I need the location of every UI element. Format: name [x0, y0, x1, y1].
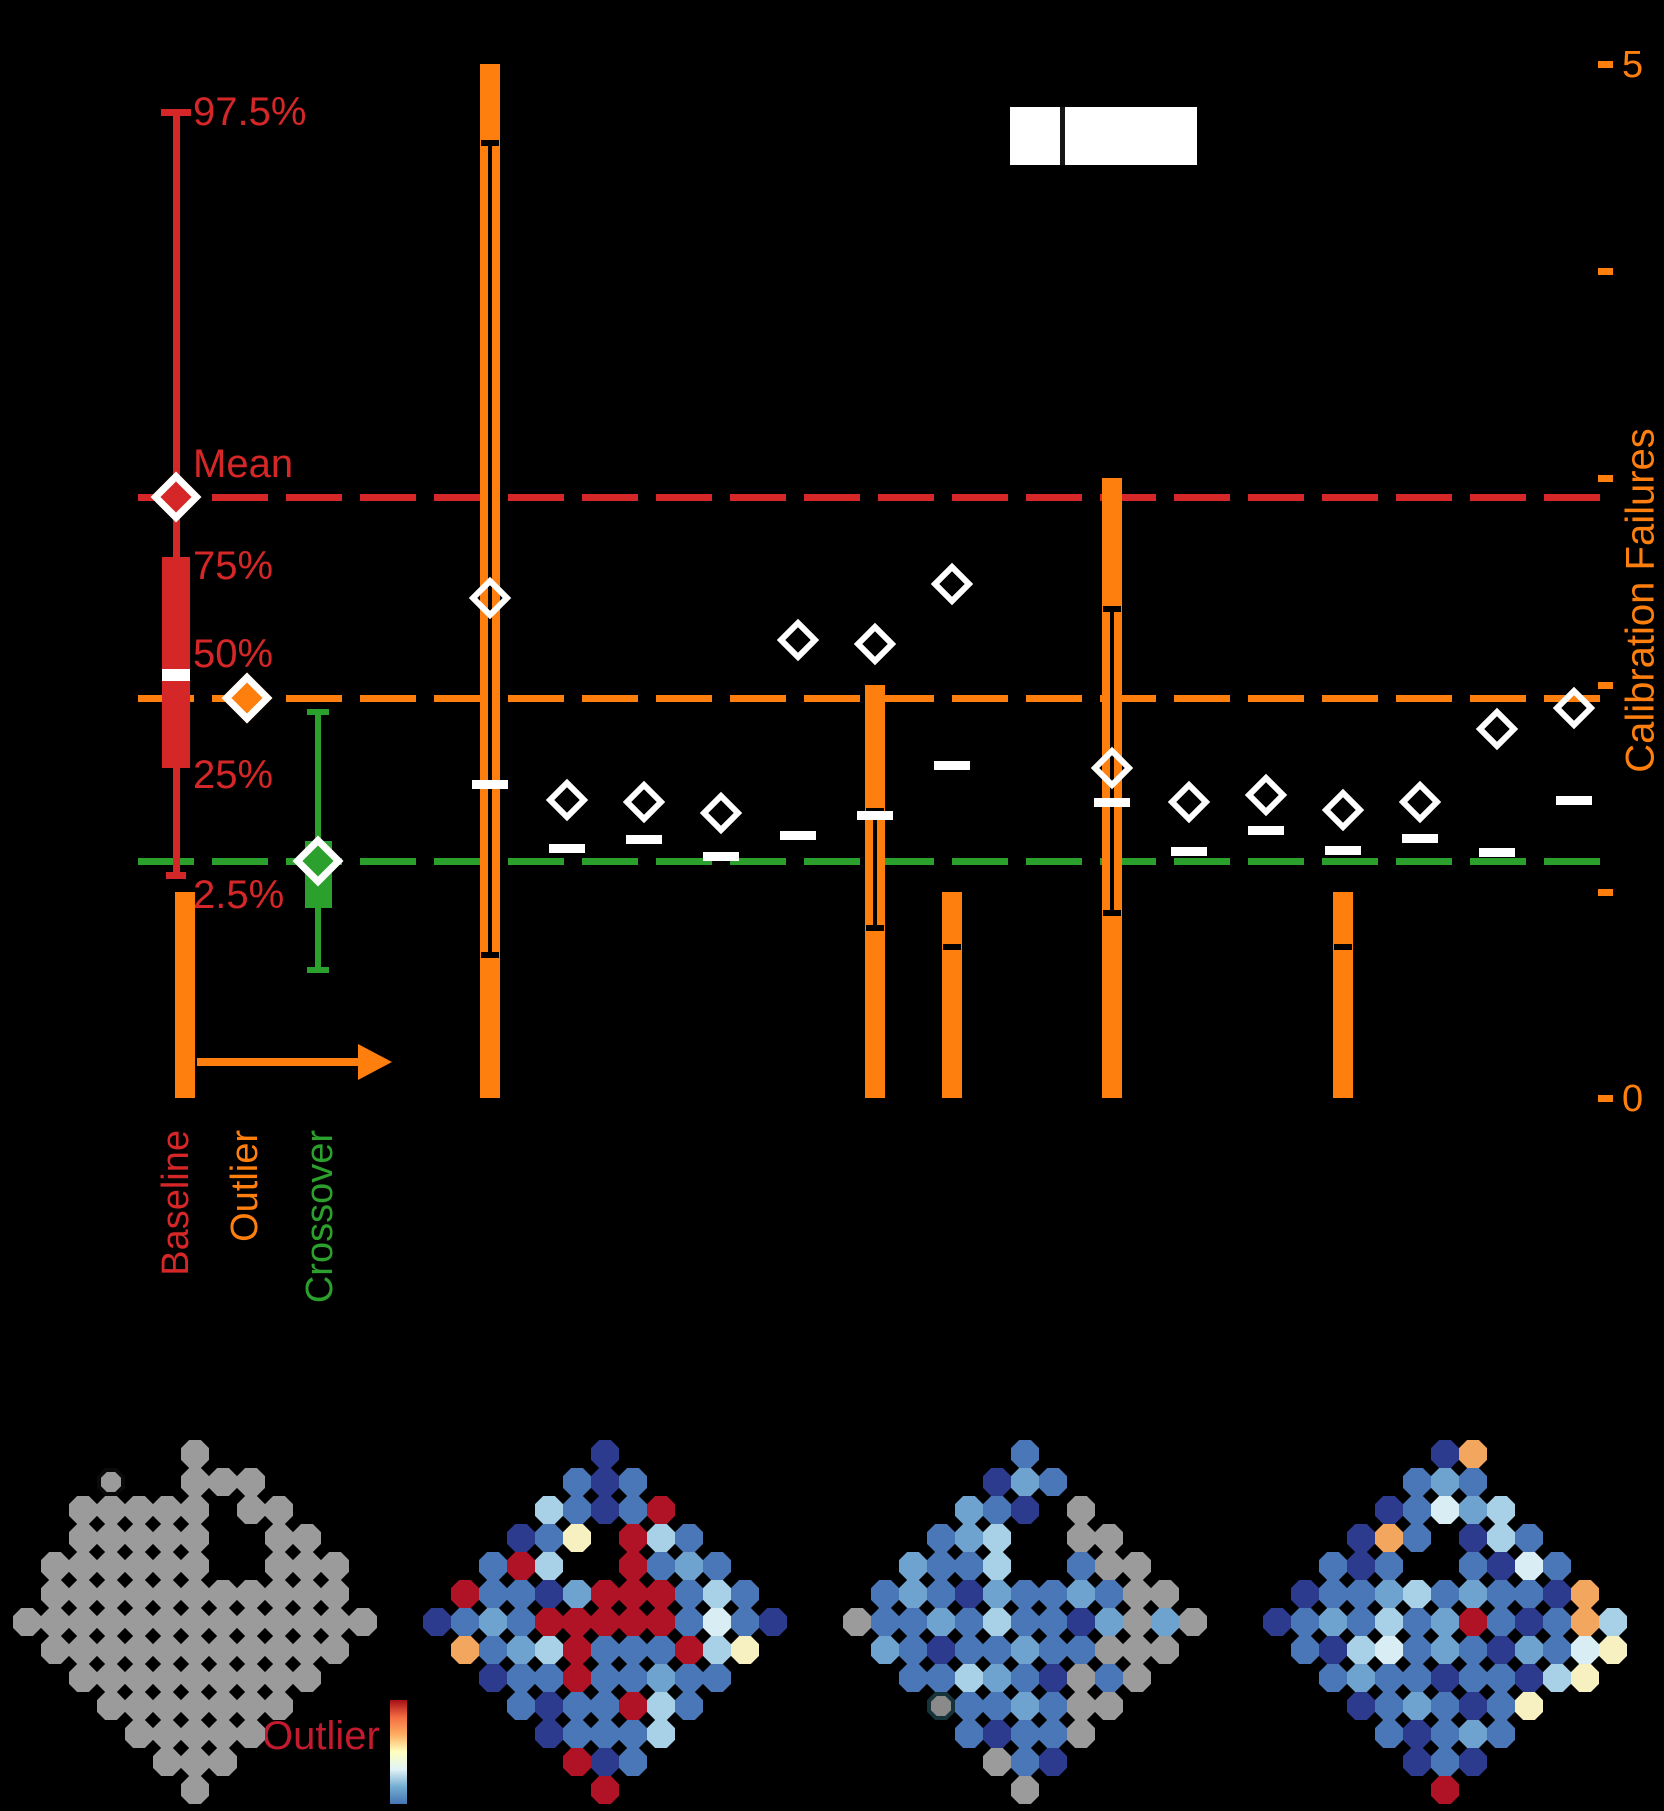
- map-fourth-cell: [1319, 1636, 1347, 1664]
- map-crossover-cell: [1039, 1580, 1067, 1608]
- map-baseline-cell: [237, 1608, 265, 1636]
- map-baseline-cell: [41, 1608, 69, 1636]
- map-baseline-cell: [69, 1636, 97, 1664]
- map-crossover-cell: [871, 1636, 899, 1664]
- map-fourth-cell: [1431, 1636, 1459, 1664]
- map-fourth-cell: [1431, 1776, 1459, 1804]
- map-fourth-cell: [1263, 1608, 1291, 1636]
- map-crossover-cell: [1095, 1552, 1123, 1580]
- map-outlier-cell: [675, 1608, 703, 1636]
- map-outlier-cell: [591, 1440, 619, 1468]
- map-baseline-cell: [125, 1552, 153, 1580]
- map-outlier-cell: [479, 1608, 507, 1636]
- map-baseline-cell: [237, 1468, 265, 1496]
- map-outlier-cell: [535, 1608, 563, 1636]
- map-fourth-cell: [1403, 1720, 1431, 1748]
- map-baseline-cell: [181, 1440, 209, 1468]
- median-dash-col-0: [472, 780, 508, 789]
- map-fourth-cell: [1347, 1664, 1375, 1692]
- map-outlier-cell: [563, 1692, 591, 1720]
- map-baseline-cell: [125, 1692, 153, 1720]
- map-crossover-cell: [1095, 1608, 1123, 1636]
- map-outlier-cell: [479, 1580, 507, 1608]
- map-fourth-cell: [1487, 1608, 1515, 1636]
- map-fourth-cell: [1431, 1496, 1459, 1524]
- map-fourth-cell: [1431, 1748, 1459, 1776]
- map-baseline-cell: [265, 1552, 293, 1580]
- map-outlier-cell: [423, 1608, 451, 1636]
- right-axis-label-top: 5: [1622, 46, 1643, 84]
- map-outlier-cell: [675, 1692, 703, 1720]
- map-crossover-cell: [1067, 1552, 1095, 1580]
- median-dash-col-6: [934, 761, 970, 770]
- map-baseline-cell: [125, 1524, 153, 1552]
- map-crossover-cell: [1011, 1636, 1039, 1664]
- right-axis-label-bottom: 0: [1622, 1080, 1643, 1118]
- map-fourth-cell: [1571, 1608, 1599, 1636]
- map-crossover-cell: [899, 1608, 927, 1636]
- map-fourth-cell: [1459, 1468, 1487, 1496]
- map-outlier-cell: [507, 1608, 535, 1636]
- bar-col-5-err-cap: [866, 925, 884, 931]
- map-outlier-cell: [507, 1664, 535, 1692]
- map-outlier-cell: [731, 1636, 759, 1664]
- map-fourth-cell: [1347, 1608, 1375, 1636]
- right-axis-title: Calibration Failures: [1619, 351, 1664, 851]
- map-outlier-cell: [647, 1496, 675, 1524]
- map-outlier-cell: [563, 1664, 591, 1692]
- map-baseline-cell: [321, 1580, 349, 1608]
- arrow-head: [358, 1044, 392, 1080]
- map-baseline-cell: [265, 1608, 293, 1636]
- map-fourth-cell: [1515, 1664, 1543, 1692]
- map-baseline-cell: [209, 1636, 237, 1664]
- label-50: 50%: [193, 634, 273, 674]
- map-outlier-cell: [563, 1748, 591, 1776]
- map-baseline-cell: [153, 1580, 181, 1608]
- map-fourth-cell: [1571, 1664, 1599, 1692]
- median-dash-col-8: [1171, 847, 1207, 856]
- map-baseline-cell: [153, 1692, 181, 1720]
- map-outlier-cell: [619, 1748, 647, 1776]
- map-baseline-cell: [181, 1468, 209, 1496]
- map-outlier-cell: [675, 1580, 703, 1608]
- map-baseline-cell: [209, 1720, 237, 1748]
- map-fourth-cell: [1515, 1580, 1543, 1608]
- map-fourth-cell: [1375, 1720, 1403, 1748]
- map-baseline-cell: [181, 1776, 209, 1804]
- map-baseline-cell: [293, 1580, 321, 1608]
- map-fourth-cell: [1319, 1608, 1347, 1636]
- map-baseline-cell: [125, 1580, 153, 1608]
- map-crossover-cell: [1151, 1608, 1179, 1636]
- map-crossover-cell: [1179, 1608, 1207, 1636]
- map-baseline-cell: [97, 1496, 125, 1524]
- map-fourth-cell: [1515, 1608, 1543, 1636]
- map-outlier-cell: [451, 1608, 479, 1636]
- bar-col-5-err-line: [873, 811, 877, 928]
- map-outlier-cell: [619, 1580, 647, 1608]
- map-outlier-cell: [675, 1524, 703, 1552]
- map-baseline-cell: [209, 1748, 237, 1776]
- map-crossover-cell: [983, 1496, 1011, 1524]
- median-dash-col-10: [1325, 846, 1361, 855]
- map-baseline-cell: [69, 1580, 97, 1608]
- map-crossover-cell: [1123, 1552, 1151, 1580]
- label-25: 25%: [193, 755, 273, 795]
- right-axis-tick: [1598, 1095, 1613, 1102]
- map-crossover-cell: [1067, 1720, 1095, 1748]
- map-outlier-cell: [563, 1580, 591, 1608]
- map-baseline-cell: [321, 1552, 349, 1580]
- bar-baseline: [175, 892, 195, 1098]
- label-mean: Mean: [193, 444, 293, 484]
- map-baseline-cell: [153, 1636, 181, 1664]
- map-outlier-cell: [535, 1496, 563, 1524]
- mean-line: [138, 494, 1608, 501]
- median-dash-col-9: [1248, 826, 1284, 835]
- mean-diamond-col-8: [1168, 781, 1210, 823]
- map-fourth-cell: [1515, 1692, 1543, 1720]
- map-crossover-cell: [1067, 1608, 1095, 1636]
- bar-col-0-err-cap: [481, 140, 499, 146]
- group-label-crossover: Crossover: [301, 1130, 339, 1450]
- map-fourth-cell: [1515, 1636, 1543, 1664]
- map-outlier-cell: [647, 1524, 675, 1552]
- map-baseline-cell: [97, 1692, 125, 1720]
- map-crossover-cell: [1011, 1748, 1039, 1776]
- map-outlier-cell: [647, 1608, 675, 1636]
- map-fourth-cell: [1431, 1580, 1459, 1608]
- red-whisker-cap-top: [161, 109, 191, 116]
- map-fourth-cell: [1431, 1608, 1459, 1636]
- map-fourth-cell: [1403, 1468, 1431, 1496]
- map-outlier-cell: [507, 1524, 535, 1552]
- map-baseline-cell: [153, 1664, 181, 1692]
- map-baseline-cell: [265, 1496, 293, 1524]
- map-baseline-cell: [13, 1608, 41, 1636]
- map-baseline-cell: [41, 1552, 69, 1580]
- map-fourth-cell: [1403, 1692, 1431, 1720]
- map-crossover-cell: [1095, 1664, 1123, 1692]
- map-outlier-cell: [535, 1692, 563, 1720]
- map-baseline-cell: [321, 1608, 349, 1636]
- map-outlier-cell: [535, 1664, 563, 1692]
- map-outlier-cell: [591, 1776, 619, 1804]
- map-fourth-cell: [1347, 1580, 1375, 1608]
- map-outlier-cell: [647, 1552, 675, 1580]
- map-fourth-cell: [1347, 1692, 1375, 1720]
- group-label-outlier: Outlier: [226, 1130, 264, 1450]
- map-fourth-cell: [1515, 1524, 1543, 1552]
- map-fourth-cell: [1375, 1664, 1403, 1692]
- map-baseline-cell: [293, 1552, 321, 1580]
- bar-col-6: [942, 892, 962, 1098]
- map-outlier-cell: [563, 1524, 591, 1552]
- right-axis-tick: [1598, 682, 1613, 689]
- map-outlier-cell: [535, 1720, 563, 1748]
- map-baseline-cell: [237, 1496, 265, 1524]
- map-crossover-cell: [1039, 1720, 1067, 1748]
- map-fourth-cell: [1543, 1552, 1571, 1580]
- map-crossover-cell: [1011, 1776, 1039, 1804]
- map-fourth-cell: [1319, 1552, 1347, 1580]
- map-fourth-cell: [1403, 1664, 1431, 1692]
- map-baseline-cell: [209, 1580, 237, 1608]
- map-baseline-cell: [97, 1608, 125, 1636]
- bar-col-10: [1333, 892, 1353, 1098]
- map-outlier-cell: [451, 1636, 479, 1664]
- map-outlier-cell: [479, 1636, 507, 1664]
- median-dash-col-12: [1479, 848, 1515, 857]
- map-crossover-cell: [1067, 1524, 1095, 1552]
- mean-diamond-col-12: [1476, 708, 1518, 750]
- map-baseline-cell: [181, 1608, 209, 1636]
- map-fourth-cell: [1487, 1524, 1515, 1552]
- map-baseline-cell: [41, 1580, 69, 1608]
- map-outlier-cell: [703, 1580, 731, 1608]
- map-crossover-cell: [1151, 1580, 1179, 1608]
- map-fourth-cell: [1543, 1664, 1571, 1692]
- map-crossover-cell: [843, 1608, 871, 1636]
- map-crossover-cell: [1067, 1664, 1095, 1692]
- map-fourth-cell: [1375, 1524, 1403, 1552]
- map-outlier-cell: [507, 1692, 535, 1720]
- map-fourth-cell: [1291, 1580, 1319, 1608]
- median-dash-col-11: [1402, 834, 1438, 843]
- legend-divider: [1060, 107, 1065, 165]
- map-fourth-cell: [1515, 1552, 1543, 1580]
- map-crossover-cell: [1095, 1524, 1123, 1552]
- map-outlier-cell: [619, 1664, 647, 1692]
- map-fourth-cell: [1375, 1580, 1403, 1608]
- map-baseline-cell: [153, 1748, 181, 1776]
- map-outlier-cell: [535, 1636, 563, 1664]
- mean-diamond-col-11: [1399, 781, 1441, 823]
- map-baseline-cell: [237, 1580, 265, 1608]
- map-baseline-cell: [209, 1664, 237, 1692]
- map-crossover-cell: [955, 1608, 983, 1636]
- map-outlier-cell: [591, 1748, 619, 1776]
- map-crossover-cell: [1011, 1496, 1039, 1524]
- map-baseline-cell: [293, 1608, 321, 1636]
- map-outlier-cell: [703, 1608, 731, 1636]
- map-crossover-cell: [899, 1636, 927, 1664]
- map-crossover-cell: [1067, 1692, 1095, 1720]
- map-crossover-cell: [955, 1720, 983, 1748]
- map-crossover-cell-outlined: [927, 1692, 955, 1720]
- map-baseline-cell: [237, 1720, 265, 1748]
- map-fourth-cell: [1375, 1496, 1403, 1524]
- map-crossover-cell: [871, 1608, 899, 1636]
- map-baseline-cell: [181, 1580, 209, 1608]
- bar-col-7-err-cap: [1103, 910, 1121, 916]
- map-outlier-cell: [451, 1580, 479, 1608]
- map-outlier-cell: [647, 1580, 675, 1608]
- map-fourth-cell: [1571, 1580, 1599, 1608]
- map-fourth-cell: [1543, 1636, 1571, 1664]
- map-crossover-cell: [983, 1608, 1011, 1636]
- map-outlier-cell: [563, 1636, 591, 1664]
- map-outlier-cell: [591, 1720, 619, 1748]
- map-outlier-cell: [591, 1636, 619, 1664]
- figure: 5 0 Calibration Failures 97.5% Mean 75% …: [0, 0, 1664, 1811]
- map-crossover-cell: [955, 1636, 983, 1664]
- red-median-line: [162, 669, 190, 681]
- green-whisker-cap-top: [307, 709, 329, 715]
- map-baseline-cell: [125, 1608, 153, 1636]
- map-crossover-cell: [983, 1692, 1011, 1720]
- map-outlier-cell: [535, 1580, 563, 1608]
- map-fourth-cell: [1375, 1692, 1403, 1720]
- orange-median-diamond: [222, 673, 273, 724]
- map-fourth-cell: [1459, 1440, 1487, 1468]
- map-baseline-cell: [69, 1608, 97, 1636]
- map-fourth-cell: [1459, 1524, 1487, 1552]
- map-outlier-cell: [731, 1608, 759, 1636]
- map-baseline-cell: [69, 1496, 97, 1524]
- map-baseline-cell: [237, 1636, 265, 1664]
- map-outlier-cell: [591, 1468, 619, 1496]
- map-crossover-cell-fill: [931, 1696, 951, 1716]
- label-97-5: 97.5%: [193, 92, 306, 132]
- map-outlier-cell: [703, 1552, 731, 1580]
- map-crossover-cell: [983, 1524, 1011, 1552]
- map-crossover-cell: [899, 1552, 927, 1580]
- map-outlier-cell: [591, 1608, 619, 1636]
- map-fourth-cell: [1375, 1552, 1403, 1580]
- map-baseline-cell: [265, 1664, 293, 1692]
- map-crossover-cell: [1095, 1636, 1123, 1664]
- red-whisker-cap-bottom: [166, 872, 186, 879]
- map-outlier-cell: [507, 1636, 535, 1664]
- map-baseline-cell: [125, 1664, 153, 1692]
- map-outlier-cell: [507, 1552, 535, 1580]
- bar-col-0-err-line: [488, 143, 492, 955]
- map-fourth-cell: [1459, 1636, 1487, 1664]
- mean-diamond-col-5: [854, 623, 896, 665]
- mean-diamond-col-0: [469, 577, 511, 619]
- map-crossover-cell: [1067, 1580, 1095, 1608]
- map-baseline-cell: [293, 1636, 321, 1664]
- map-fourth-cell: [1459, 1664, 1487, 1692]
- map-fourth-cell: [1347, 1636, 1375, 1664]
- map-outlier-cell: [647, 1664, 675, 1692]
- map-baseline-cell: [97, 1580, 125, 1608]
- map-crossover-cell: [983, 1664, 1011, 1692]
- label-75: 75%: [193, 546, 273, 586]
- map-fourth-cell: [1459, 1608, 1487, 1636]
- map-crossover-cell: [1123, 1664, 1151, 1692]
- right-axis-tick: [1598, 475, 1613, 482]
- map-crossover-cell: [1011, 1580, 1039, 1608]
- map-baseline-cell: [237, 1664, 265, 1692]
- map-outlier-cell: [591, 1664, 619, 1692]
- map-fourth-cell: [1543, 1580, 1571, 1608]
- map-outlier-cell: [647, 1692, 675, 1720]
- map-baseline-cell: [209, 1468, 237, 1496]
- map-fourth-cell: [1459, 1692, 1487, 1720]
- map-outlier-cell: [703, 1664, 731, 1692]
- map-outlier-cell: [563, 1608, 591, 1636]
- map-outlier-cell: [759, 1608, 787, 1636]
- map-crossover-cell: [955, 1524, 983, 1552]
- map-fourth-cell: [1487, 1580, 1515, 1608]
- map-baseline-cell: [153, 1608, 181, 1636]
- right-axis-tick: [1598, 61, 1613, 68]
- map-baseline-cell: [349, 1608, 377, 1636]
- map-baseline-cell: [237, 1692, 265, 1720]
- map-crossover-cell: [927, 1608, 955, 1636]
- map-baseline-cell: [181, 1636, 209, 1664]
- map-fourth-cell: [1319, 1664, 1347, 1692]
- map-baseline-cell: [97, 1552, 125, 1580]
- map-fourth-cell: [1291, 1636, 1319, 1664]
- bar-col-6-err-cap: [943, 944, 961, 950]
- map-fourth-cell: [1347, 1552, 1375, 1580]
- map-baseline-cell: [181, 1692, 209, 1720]
- map-baseline-cell: [321, 1636, 349, 1664]
- legend-box: [1010, 107, 1197, 165]
- outlier-colorbar: [390, 1700, 407, 1804]
- mean-diamond-col-2: [623, 781, 665, 823]
- map-crossover-cell: [927, 1664, 955, 1692]
- map-outlier-cell: [675, 1636, 703, 1664]
- map-fourth-cell: [1487, 1664, 1515, 1692]
- map-baseline-cell: [265, 1580, 293, 1608]
- map-crossover-cell: [927, 1552, 955, 1580]
- map-crossover-cell: [899, 1580, 927, 1608]
- label-2-5: 2.5%: [193, 875, 284, 915]
- map-baseline-cell: [125, 1496, 153, 1524]
- map-crossover-cell: [955, 1692, 983, 1720]
- map-crossover-cell: [1039, 1692, 1067, 1720]
- map-baseline-cell: [125, 1636, 153, 1664]
- map-crossover-cell: [955, 1496, 983, 1524]
- map-outlier-cell: [619, 1524, 647, 1552]
- map-crossover-cell: [927, 1636, 955, 1664]
- map-crossover-cell: [1095, 1692, 1123, 1720]
- map-baseline-cell-outlined: [97, 1468, 125, 1496]
- map-baseline-cell: [209, 1692, 237, 1720]
- bar-col-10-err-cap: [1334, 944, 1352, 950]
- bar-col-7-err-cap: [1103, 606, 1121, 612]
- map-outlier-cell: [731, 1580, 759, 1608]
- map-fourth-cell: [1543, 1608, 1571, 1636]
- mean-diamond-col-9: [1245, 774, 1287, 816]
- median-dash-col-13: [1556, 796, 1592, 805]
- map-fourth-cell: [1459, 1580, 1487, 1608]
- map-outlier-cell: [591, 1580, 619, 1608]
- map-baseline-cell: [153, 1552, 181, 1580]
- map-baseline-cell: [69, 1664, 97, 1692]
- map-baseline-cell: [209, 1608, 237, 1636]
- map-crossover-cell: [1123, 1608, 1151, 1636]
- map-fourth-cell: [1319, 1580, 1347, 1608]
- map-crossover-cell: [983, 1636, 1011, 1664]
- map-fourth-cell: [1431, 1468, 1459, 1496]
- map-crossover-cell: [1039, 1748, 1067, 1776]
- map-crossover-cell: [1039, 1468, 1067, 1496]
- map-fourth-cell: [1375, 1636, 1403, 1664]
- map-outlier-cell: [619, 1720, 647, 1748]
- map-outlier-cell: [619, 1496, 647, 1524]
- map-fourth-cell: [1291, 1608, 1319, 1636]
- map-crossover-cell: [1039, 1608, 1067, 1636]
- map-crossover-cell: [1123, 1580, 1151, 1608]
- arrow-line: [197, 1058, 358, 1066]
- map-crossover-cell: [1039, 1664, 1067, 1692]
